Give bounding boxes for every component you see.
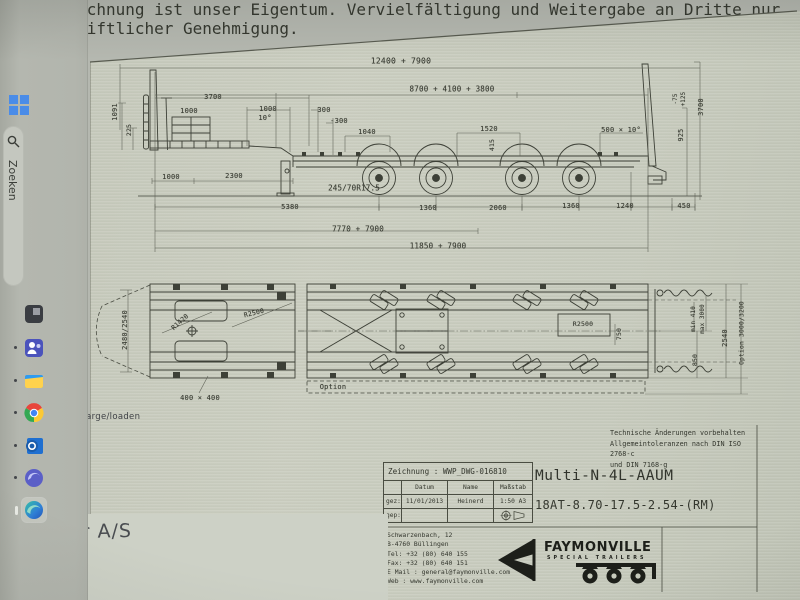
title-block: Zeichnung : WWP_DWG-016810 Datum Name Ma… [383,462,533,523]
dark-app-icon [24,304,44,324]
tolerance-note: Technische Änderungen vorbehalten Allgem… [610,428,760,470]
running-indicator [14,444,17,447]
chrome-icon [24,403,44,423]
taskbar: Zoeken [0,0,88,600]
start-button[interactable] [8,94,30,116]
photographed-screen: 12400 + 79008700 + 4100 + 38003700109122… [0,0,800,600]
model-name: Multi-N-4L-AAUM [535,468,673,484]
search-label: Zoeken [6,160,19,201]
taskbar-app-edge[interactable] [22,498,46,522]
gez-name: Heinerd [448,495,494,509]
scale-value: 1:50 [500,498,515,505]
taskbar-app-outlook[interactable] [22,434,46,458]
projection-symbol [494,509,532,522]
company-address: Schwarzenbach, 12 B-4760 Büllingen Tel: … [387,531,510,587]
outlook-icon [24,436,44,456]
faymonville-f-icon [496,536,542,582]
brand-name: FAYMONVILLE [544,540,651,555]
col-header-massstab: Maßstab [494,481,532,495]
file-explorer-icon [24,371,44,391]
col-header-datum: Datum [402,481,448,495]
model-spec: 18AT-8.70-17.5-2.54-(RM) [535,498,716,512]
taskbar-app-teams[interactable] [22,336,46,360]
scale-format: 1:50 A3 [494,495,532,509]
taskbar-app-dark[interactable] [22,302,46,326]
running-indicator [14,379,17,382]
search-button[interactable]: Zoeken [3,126,24,286]
first-angle-projection-icon [500,510,526,521]
taskbar-app-chrome[interactable] [22,401,46,425]
running-indicator [14,411,17,414]
running-indicator [14,346,17,349]
taskbar-app-file-explorer[interactable] [22,369,46,393]
gep-name [448,509,494,522]
windows-logo-icon [8,94,30,116]
gez-date: 11/01/2013 [402,495,448,509]
col-header-name: Name [448,481,494,495]
search-icon [7,135,20,148]
trailer-silhouette-icon [576,561,658,587]
teams-icon [24,338,44,358]
faymonville-logo: FAYMONVILLE SPECIAL TRAILERS [496,534,664,586]
sheet-format: A3 [519,498,526,505]
running-indicator [14,476,17,479]
gep-date [402,509,448,522]
edge-icon [24,500,44,520]
row-label-gez: gez: [384,495,402,509]
edge-insider-icon [24,468,44,488]
empty-cell [384,481,402,495]
drawing-number: Zeichnung : WWP_DWG-016810 [384,463,532,481]
taskbar-app-edge-insider[interactable] [22,466,46,490]
